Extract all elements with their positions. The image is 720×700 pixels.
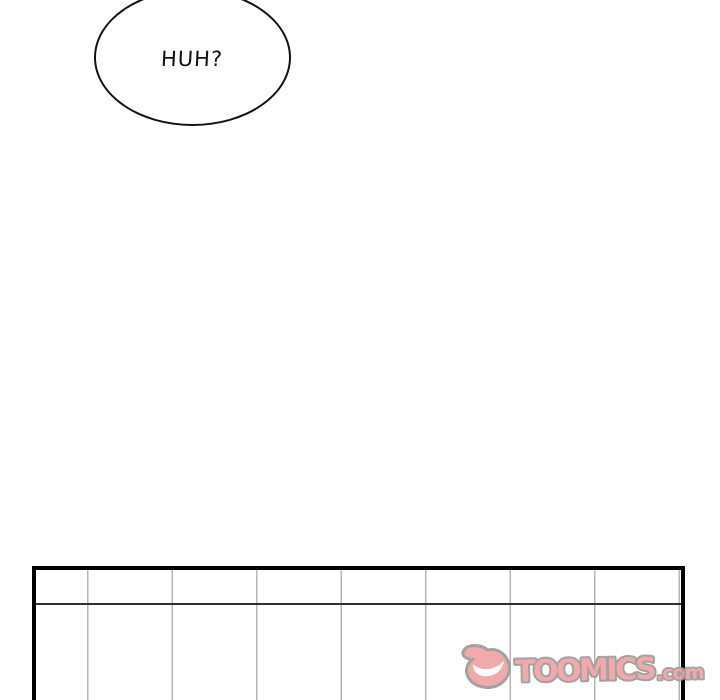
watermark: TOOMICS .com (457, 636, 720, 693)
speech-bubble-text: HUH? (161, 45, 224, 71)
panel-rail-line (36, 603, 681, 605)
speech-bubble: HUH? (94, 0, 291, 126)
watermark-brand-text: TOOMICS (515, 652, 656, 690)
comic-page: HUH? TOOMICS .com (0, 0, 720, 700)
watermark-logo-svg: TOOMICS .com (457, 636, 720, 693)
watermark-suffix-text: .com (656, 662, 704, 685)
toomics-devil-icon (463, 645, 510, 688)
